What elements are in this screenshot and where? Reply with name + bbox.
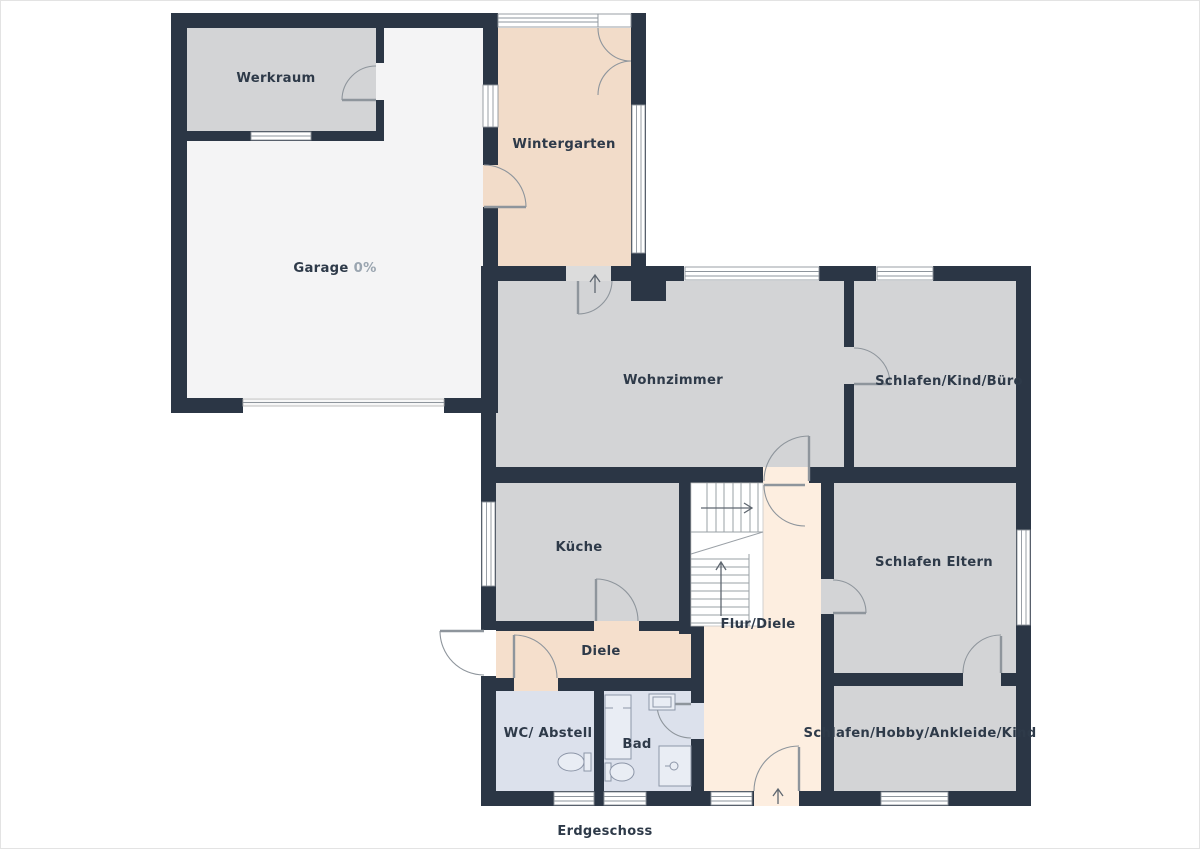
door-diele-exterior	[440, 631, 484, 675]
bad-sink	[649, 694, 675, 710]
window-flur-bottom	[711, 792, 752, 805]
window-wohnzimmer-top	[685, 267, 819, 280]
label-wc-abstell: WC/ Abstell	[504, 726, 593, 741]
room-flur-lower	[691, 621, 821, 791]
label-garage: Garage0%	[293, 261, 376, 276]
window-kueche-left	[482, 502, 495, 586]
label-schlafen-eltern: Schlafen Eltern	[875, 555, 993, 570]
window-werkraum	[251, 132, 311, 140]
label-flur-diele: Flur/Diele	[720, 617, 795, 632]
wc-toilet	[558, 753, 591, 771]
label-wohnzimmer: Wohnzimmer	[623, 373, 723, 388]
label-kueche: Küche	[555, 540, 602, 555]
window-bad-bottom	[604, 792, 646, 805]
window-schlafen-hobby-bottom	[881, 792, 948, 805]
label-schlafen-kind-buero: Schlafen/Kind/Büro	[875, 374, 1023, 389]
label-schlafen-hobby: Schlafen/Hobby/Ankleide/Kind	[804, 726, 1037, 741]
window-schlafen-kind-top	[877, 267, 933, 280]
bad-toilet	[605, 763, 634, 781]
staircase	[691, 483, 763, 626]
window-wintergarten-right	[632, 105, 645, 253]
window-schlafen-eltern-right	[1017, 530, 1030, 625]
window-wintergarten-top	[498, 14, 631, 27]
label-werkraum: Werkraum	[236, 71, 315, 86]
label-diele: Diele	[581, 644, 620, 659]
room-schlafen-eltern	[834, 483, 1016, 673]
room-flur-upper	[763, 483, 821, 626]
label-garage-name: Garage	[293, 261, 348, 276]
label-garage-value: 0%	[354, 261, 377, 276]
floorplan-drawing: Werkraum Garage0% Wintergarten Wohnzimme…	[1, 1, 1199, 848]
floorplan-page: Werkraum Garage0% Wintergarten Wohnzimme…	[0, 0, 1200, 849]
label-wintergarten: Wintergarten	[512, 137, 615, 152]
garage-door	[243, 399, 444, 406]
label-bad: Bad	[622, 737, 651, 752]
window-wc-bottom	[554, 792, 594, 805]
bad-shower	[659, 746, 691, 786]
window-garage-wintergarten	[483, 85, 498, 127]
floor-title: Erdgeschoss	[557, 824, 652, 839]
room-wc-abstell	[496, 691, 594, 791]
